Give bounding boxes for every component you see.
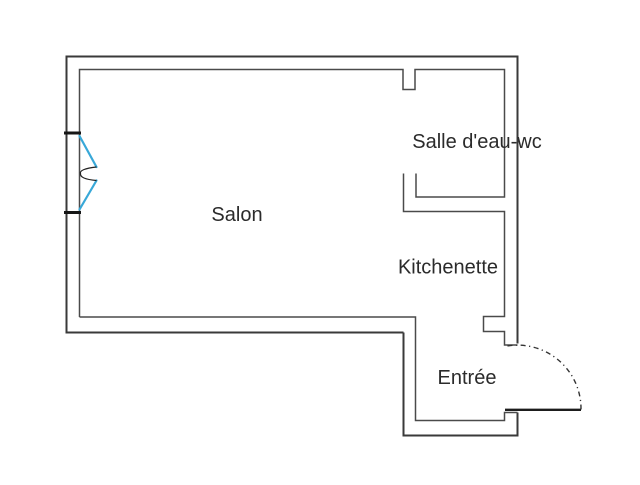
room-label-salon: Salon: [211, 204, 262, 226]
floor-plan-svg: Salon Salle d'eau-wc Kitchenette Entrée: [0, 0, 640, 485]
floor-plan: Salon Salle d'eau-wc Kitchenette Entrée: [0, 0, 640, 485]
room-label-salle-eau-wc: Salle d'eau-wc: [412, 131, 541, 153]
room-label-entree: Entrée: [438, 367, 497, 389]
room-label-kitchenette: Kitchenette: [398, 257, 498, 279]
plan-background: [0, 0, 640, 485]
